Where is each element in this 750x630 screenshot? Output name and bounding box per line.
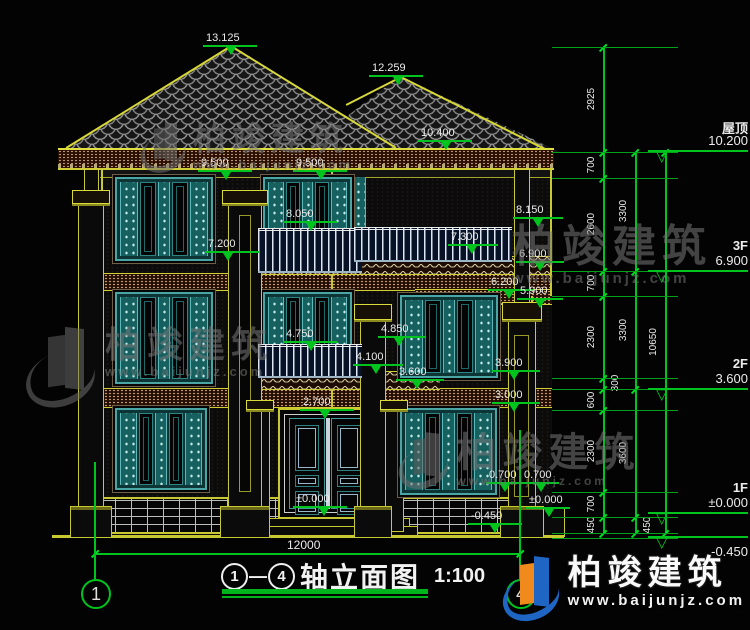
watermark-text: 柏竣建筑www.baijunjz.com <box>568 556 745 609</box>
elevation-label: 7.200 <box>208 238 236 250</box>
window-pane <box>140 297 156 379</box>
window-shutter-panel <box>120 413 137 485</box>
elevation-marker-triangle <box>306 343 316 356</box>
window-shutter-panel <box>120 182 138 256</box>
elevation-label: 8.050 <box>286 208 314 220</box>
level-value: 3.600 <box>678 371 748 386</box>
dim-chain-line <box>665 152 667 533</box>
dim-value: 700 <box>585 145 597 185</box>
window-pane <box>140 182 156 256</box>
elevation-label: -0.450 <box>471 510 502 522</box>
elevation-marker-triangle <box>221 172 231 185</box>
window <box>115 408 207 490</box>
dim-chain-line <box>603 47 605 533</box>
title-axis-end-circle: 4 <box>268 563 295 590</box>
elevation-marker-triangle <box>320 411 330 424</box>
axis-bubble: 1 <box>81 579 111 609</box>
elevation-label: 4.850 <box>381 323 409 335</box>
elevation-marker-triangle <box>467 246 477 259</box>
dim-value: 10650 <box>647 322 659 362</box>
dim-value: 3300 <box>617 191 629 231</box>
elevation-marker-triangle <box>535 263 545 276</box>
door-pilaster-left-capital <box>246 400 274 410</box>
elevation-marker-triangle <box>223 253 233 266</box>
window-shutter-panel <box>475 300 493 373</box>
elevation-marker-triangle <box>504 291 514 304</box>
dim-value: 3300 <box>617 310 629 350</box>
elevation-marker-triangle <box>500 484 510 497</box>
extension-line <box>552 47 678 48</box>
axis-line <box>519 430 521 580</box>
elevation-marker-triangle <box>306 223 316 236</box>
elevation-marker-triangle <box>544 509 554 522</box>
dim-value: 450 <box>585 505 597 545</box>
elevation-label: 0.700 <box>489 469 517 481</box>
dim-value: 300 <box>609 363 621 403</box>
elevation-label: 9.500 <box>296 157 324 169</box>
elevation-marker-triangle <box>533 219 543 232</box>
window-pane <box>457 413 473 490</box>
elevation-marker-triangle <box>371 366 381 379</box>
elevation-label: 0.700 <box>524 469 552 481</box>
door-panel <box>337 475 361 487</box>
dim-value: 3600 <box>617 433 629 473</box>
brand-logo-part <box>534 556 549 606</box>
level-triangle: ▽ <box>656 535 668 550</box>
elevation-marker-triangle <box>393 77 403 90</box>
pilaster-3-capital <box>354 304 392 320</box>
dim-value: 600 <box>585 380 597 420</box>
dim-value: 2300 <box>585 431 597 471</box>
elevation-label: 6.200 <box>491 276 519 288</box>
title-underline-thin <box>222 596 428 598</box>
dim-chain-line <box>635 152 637 533</box>
elevation-marker-triangle <box>509 404 519 417</box>
title-axis-start-circle: 1 <box>221 563 248 590</box>
level-value: ±0.000 <box>678 495 748 510</box>
elevation-label: ±0.000 <box>529 494 563 506</box>
pilaster-4-base <box>500 506 544 538</box>
elevation-label: 5.900 <box>520 285 548 297</box>
window <box>400 408 497 495</box>
level-name: 1F <box>678 480 748 495</box>
elevation-label: 12.259 <box>372 62 406 74</box>
elevation-label: 9.500 <box>201 157 229 169</box>
elevation-label: 3.000 <box>495 389 523 401</box>
extension-line <box>552 492 678 493</box>
pilaster-1-capital <box>72 190 110 204</box>
door-panel <box>337 425 361 471</box>
window-shutter-panel <box>120 297 138 379</box>
elevation-marker-triangle <box>319 508 329 521</box>
width-dim-line <box>95 553 520 555</box>
elevation-marker-triangle <box>509 372 519 385</box>
elevation-label: 3.600 <box>399 366 427 378</box>
watermark-brand: 柏竣建筑 <box>568 556 745 592</box>
elevation-marker-triangle <box>412 381 422 394</box>
level-triangle: ▽ <box>656 387 668 402</box>
level-triangle: ▽ <box>656 511 668 526</box>
window-pane <box>139 413 153 485</box>
extension-line <box>552 378 678 379</box>
window-pane <box>457 300 473 373</box>
elevation-label: 7.300 <box>451 231 479 243</box>
elevation-label: 8.150 <box>516 204 544 216</box>
window-pane <box>425 300 441 373</box>
dim-value: 2925 <box>585 79 597 119</box>
elevation-label: 3.900 <box>495 357 523 369</box>
level-value: 10.200 <box>678 133 748 148</box>
window-shutter-panel <box>185 413 202 485</box>
window-shutter-panel <box>158 182 171 256</box>
dim-value: 450 <box>641 505 653 545</box>
title-underline-thick <box>222 589 428 594</box>
elevation-marker-triangle <box>490 525 500 538</box>
extension-line <box>552 296 678 297</box>
pilaster-1-shaft <box>78 196 104 508</box>
elevation-label: 6.900 <box>519 248 547 260</box>
elevation-label: 4.750 <box>286 328 314 340</box>
window <box>115 177 213 261</box>
elevation-label: 2.700 <box>303 396 331 408</box>
elevation-label: 4.100 <box>356 351 384 363</box>
brand-logo-part <box>48 334 65 386</box>
watermark: 柏竣建筑www.baijunjz.com <box>502 556 745 620</box>
elevation-marker-triangle <box>226 47 236 60</box>
extension-line <box>552 178 678 179</box>
window-pane <box>172 297 188 379</box>
level-value: -0.450 <box>678 544 748 559</box>
window-pane <box>425 413 441 490</box>
level-name: 2F <box>678 356 748 371</box>
elevation-marker-triangle <box>394 338 404 351</box>
window-shutter-panel <box>442 413 454 490</box>
window-shutter-panel <box>443 300 456 373</box>
axis-bubble: 4 <box>506 579 536 609</box>
door-panel <box>295 475 319 487</box>
pilaster-2-capital <box>222 190 268 204</box>
pilaster-3-shaft <box>360 318 386 510</box>
elevation-marker-triangle <box>441 142 451 155</box>
level-triangle: ▽ <box>656 269 668 284</box>
window-pane <box>169 413 183 485</box>
wall-edge-right-upper <box>550 166 552 296</box>
extension-line <box>552 410 678 411</box>
door-panel <box>295 425 319 471</box>
window <box>115 292 213 384</box>
window-shutter-panel <box>190 182 208 256</box>
pilaster-3-base <box>354 506 392 538</box>
pilaster-2-panel <box>239 215 251 492</box>
title-axis-separator: — <box>249 566 267 587</box>
window-pane <box>172 182 188 256</box>
pilaster-1-base <box>70 506 112 538</box>
watermark-url: www.baijunjz.com <box>568 592 745 609</box>
pilaster-2-base <box>220 506 270 538</box>
width-dim-value: 12000 <box>287 539 320 551</box>
elevation-label: 10.400 <box>421 127 455 139</box>
axis-line <box>94 462 96 580</box>
elevation-label: 13.125 <box>206 32 240 44</box>
window-shutter-panel <box>190 297 208 379</box>
level-value: 6.900 <box>678 253 748 268</box>
dim-value: 2300 <box>585 317 597 357</box>
level-name: 3F <box>678 238 748 253</box>
dim-value: 700 <box>585 263 597 303</box>
title-scale: 1:100 <box>434 565 485 588</box>
level-triangle: ▽ <box>656 149 668 164</box>
door-pilaster-right-capital <box>380 400 408 410</box>
window-shutter-panel <box>158 297 171 379</box>
elevation-drawing-canvas: 1 — 4 轴立面图 1:100 12000 13.12512.25910.40… <box>0 0 750 630</box>
window-shutter-panel <box>155 413 167 485</box>
elevation-marker-triangle <box>535 300 545 313</box>
dim-value: 2600 <box>585 204 597 244</box>
window-shutter-panel <box>405 413 423 490</box>
elevation-marker-triangle <box>316 172 326 185</box>
elevation-label: ±0.000 <box>296 493 330 505</box>
